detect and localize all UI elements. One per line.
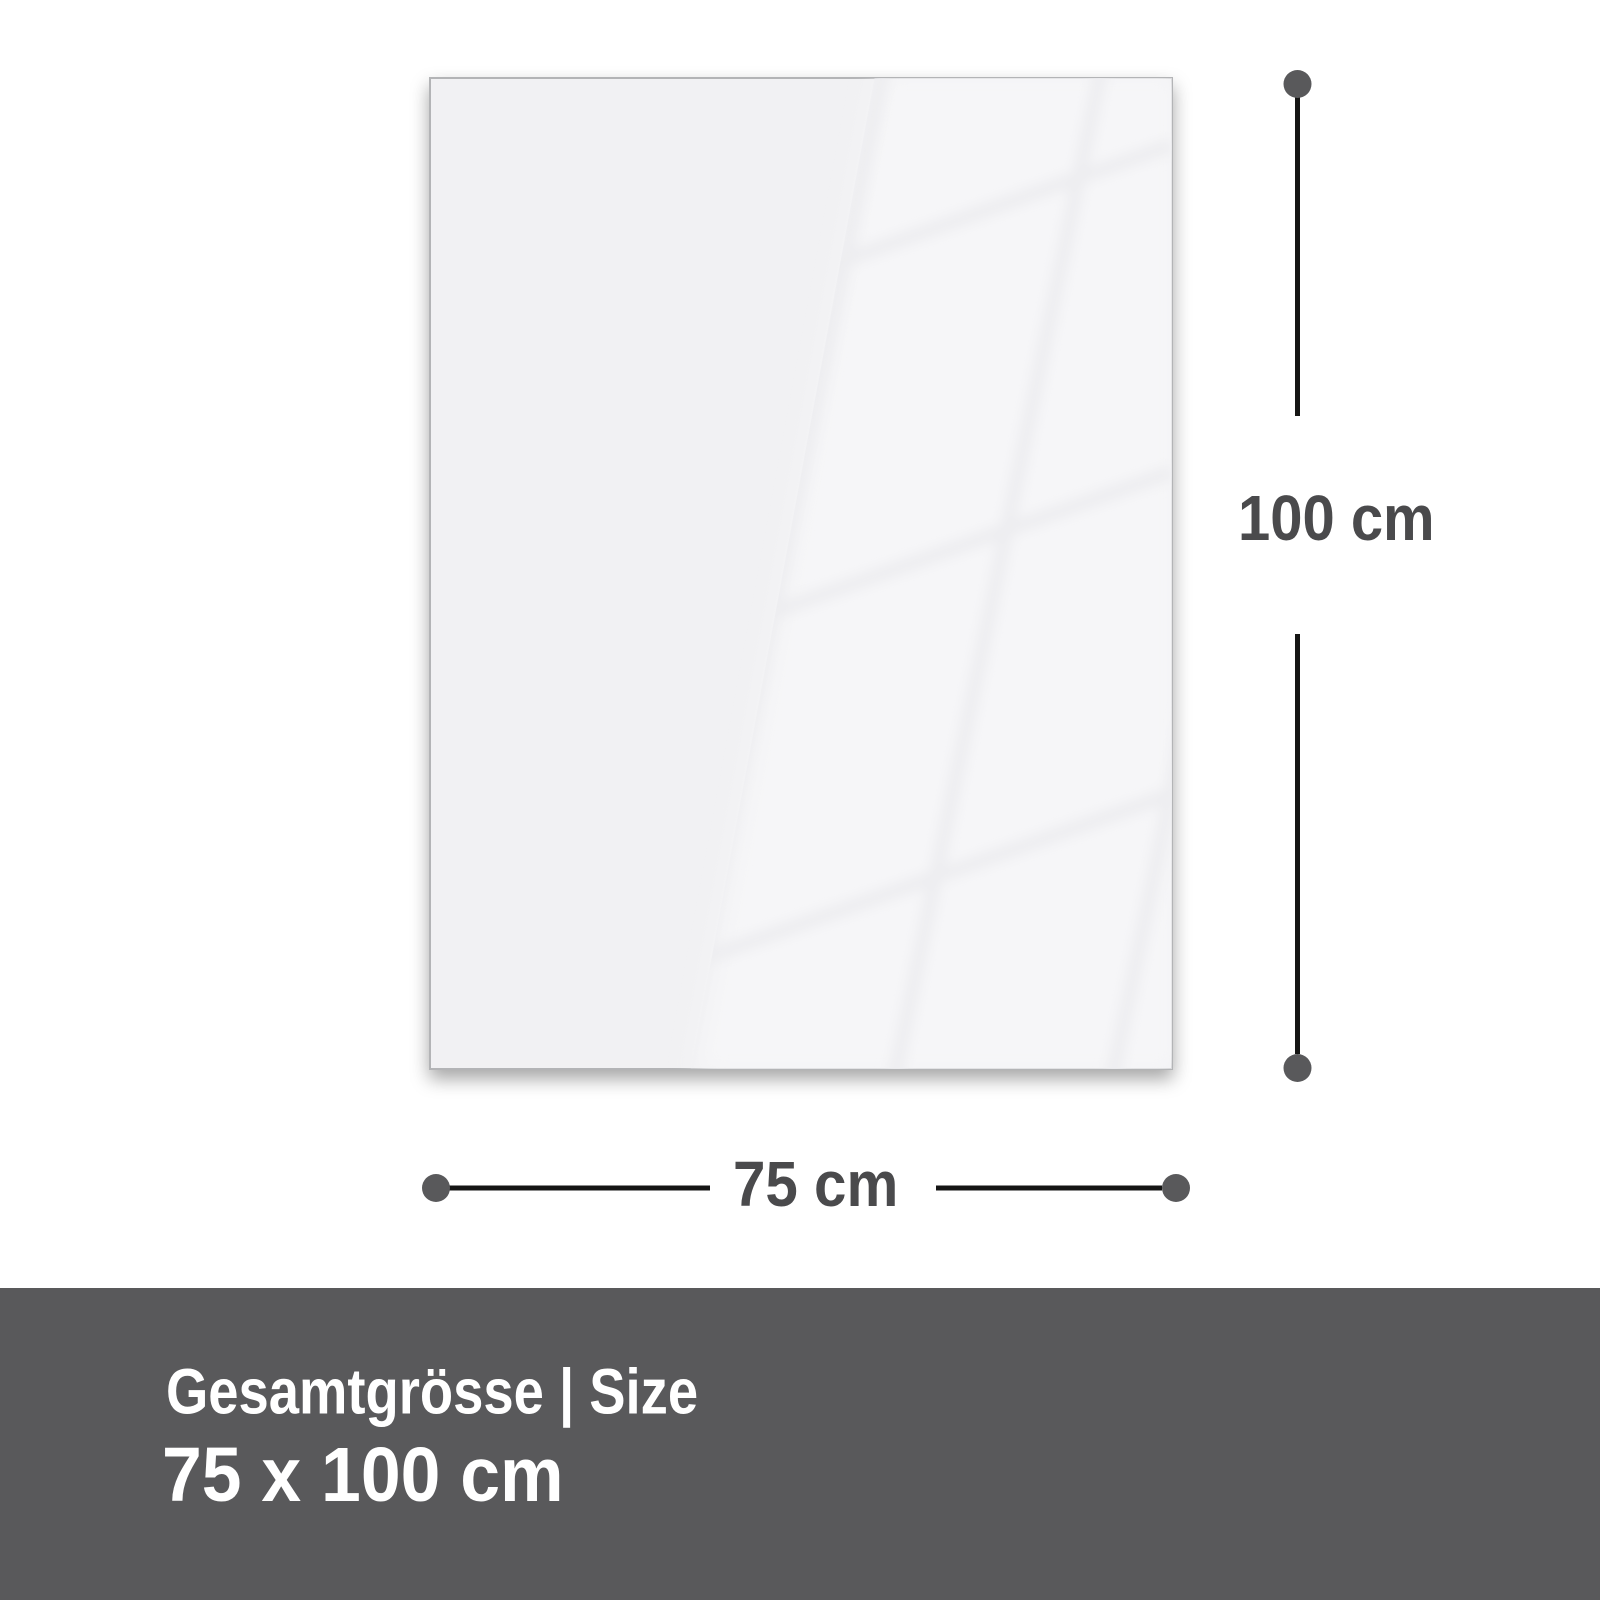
svg-text:100 cm: 100 cm bbox=[1238, 482, 1435, 553]
svg-text:75 cm: 75 cm bbox=[733, 1149, 898, 1220]
svg-text:75 x 100 cm: 75 x 100 cm bbox=[162, 1432, 564, 1518]
svg-text:Gesamtgrösse | Size: Gesamtgrösse | Size bbox=[166, 1355, 698, 1428]
